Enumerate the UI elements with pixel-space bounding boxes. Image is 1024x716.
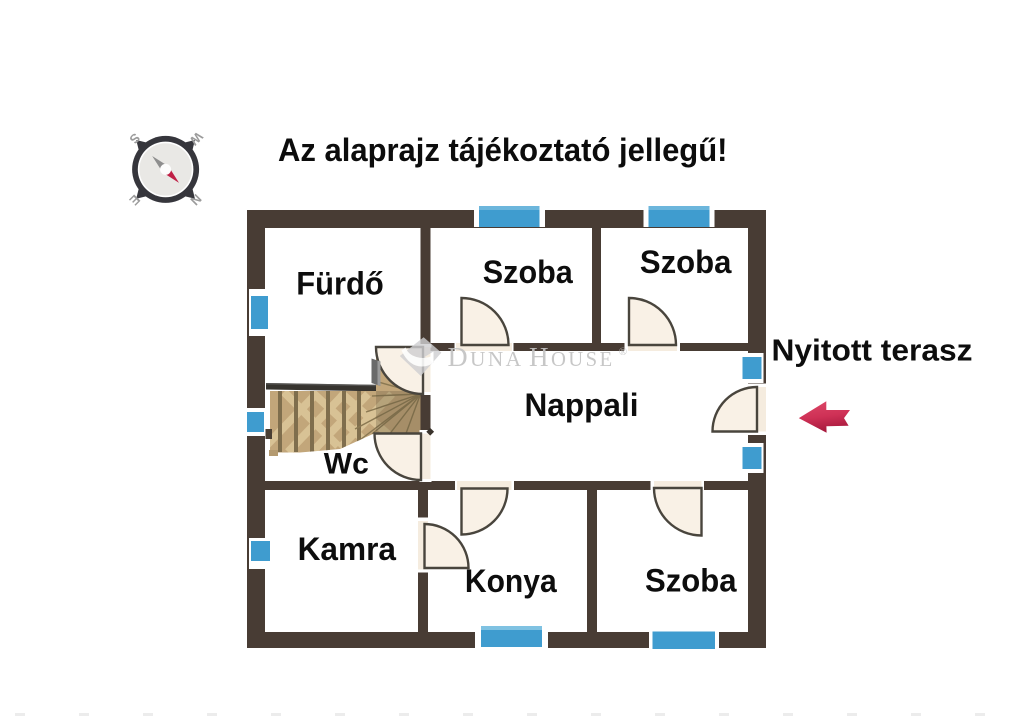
svg-text:Kamra: Kamra — [298, 531, 397, 567]
svg-text:Fürdő: Fürdő — [296, 266, 384, 302]
svg-text:Szoba: Szoba — [483, 254, 573, 290]
svg-text:Nyitott terasz: Nyitott terasz — [772, 333, 973, 368]
svg-text:S: S — [126, 130, 143, 147]
svg-text:Konya: Konya — [465, 563, 557, 599]
svg-text:Szoba: Szoba — [640, 244, 732, 280]
svg-text:Az alaprajz tájékoztató jelleg: Az alaprajz tájékoztató jellegű! — [278, 132, 728, 168]
svg-text:Nappali: Nappali — [525, 387, 639, 423]
svg-text:Szoba: Szoba — [645, 563, 737, 599]
svg-text:®: ® — [619, 346, 627, 358]
svg-text:Wc: Wc — [324, 448, 369, 481]
